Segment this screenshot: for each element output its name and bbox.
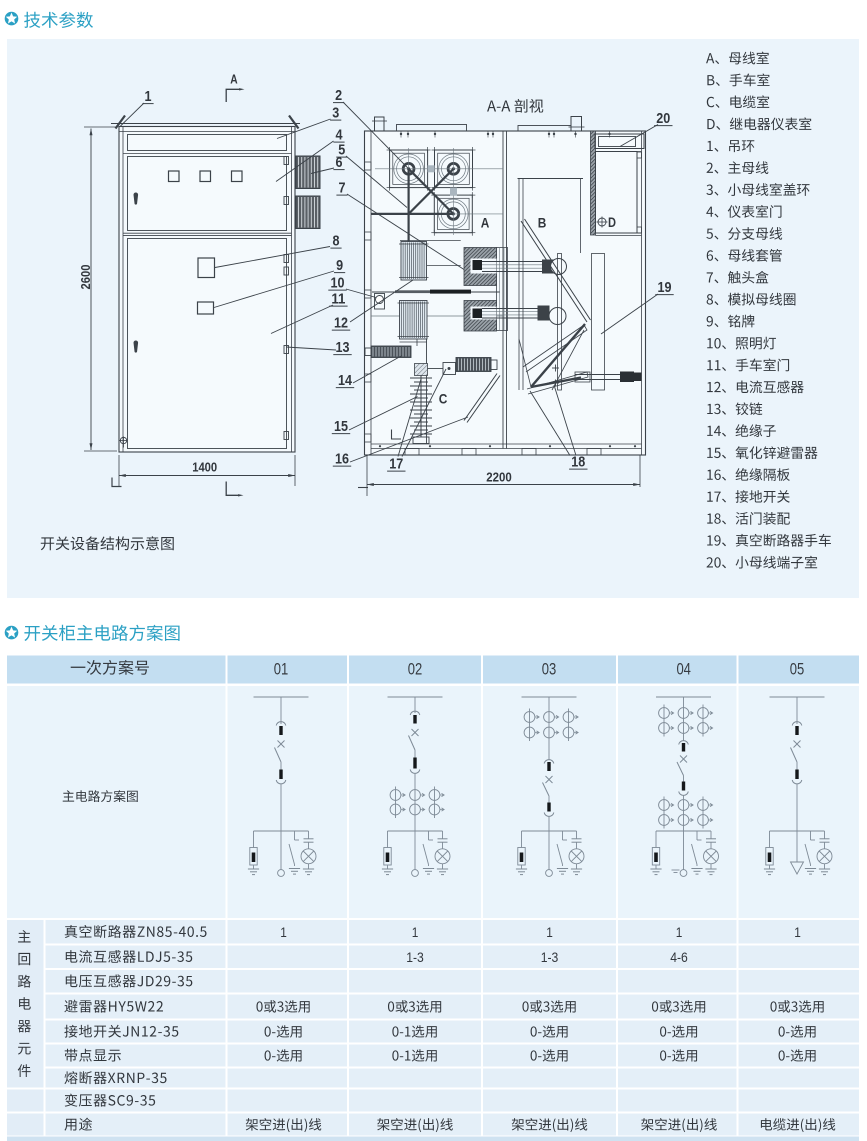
svg-text:1-3: 1-3 [541, 949, 559, 965]
svg-text:1: 1 [412, 924, 419, 940]
svg-text:D: D [608, 215, 616, 230]
svg-text:18: 18 [571, 454, 585, 471]
svg-text:9: 9 [336, 257, 343, 274]
svg-text:1: 1 [676, 924, 683, 940]
svg-text:19: 19 [658, 279, 672, 296]
svg-text:14: 14 [338, 372, 353, 389]
svg-text:11: 11 [331, 291, 345, 308]
svg-text:05: 05 [790, 660, 805, 679]
svg-text:3: 3 [332, 105, 339, 122]
svg-text:04: 04 [676, 660, 691, 679]
svg-text:8: 8 [333, 233, 340, 250]
svg-text:01: 01 [274, 660, 289, 679]
svg-text:B: B [538, 214, 547, 230]
svg-text:1: 1 [794, 924, 801, 940]
svg-text:20: 20 [656, 110, 670, 127]
svg-text:2200: 2200 [486, 471, 512, 485]
svg-text:1: 1 [145, 88, 152, 105]
svg-text:1-3: 1-3 [406, 949, 424, 965]
svg-text:17: 17 [389, 456, 403, 473]
svg-text:02: 02 [408, 660, 423, 679]
svg-text:A: A [481, 214, 490, 230]
svg-text:1400: 1400 [192, 461, 217, 475]
svg-text:15: 15 [334, 418, 348, 435]
svg-text:A: A [230, 72, 238, 87]
svg-text:6: 6 [336, 154, 343, 171]
svg-text:1: 1 [280, 924, 287, 940]
svg-text:2: 2 [335, 87, 342, 104]
svg-text:7: 7 [339, 180, 346, 197]
svg-text:2600: 2600 [79, 264, 93, 289]
svg-text:03: 03 [542, 660, 557, 679]
svg-text:13: 13 [336, 339, 350, 356]
svg-text:16: 16 [335, 451, 349, 468]
svg-text:4-6: 4-6 [670, 949, 688, 965]
svg-text:12: 12 [334, 315, 348, 332]
svg-text:1: 1 [546, 924, 553, 940]
svg-text:10: 10 [331, 275, 345, 292]
svg-text:C: C [439, 391, 448, 407]
